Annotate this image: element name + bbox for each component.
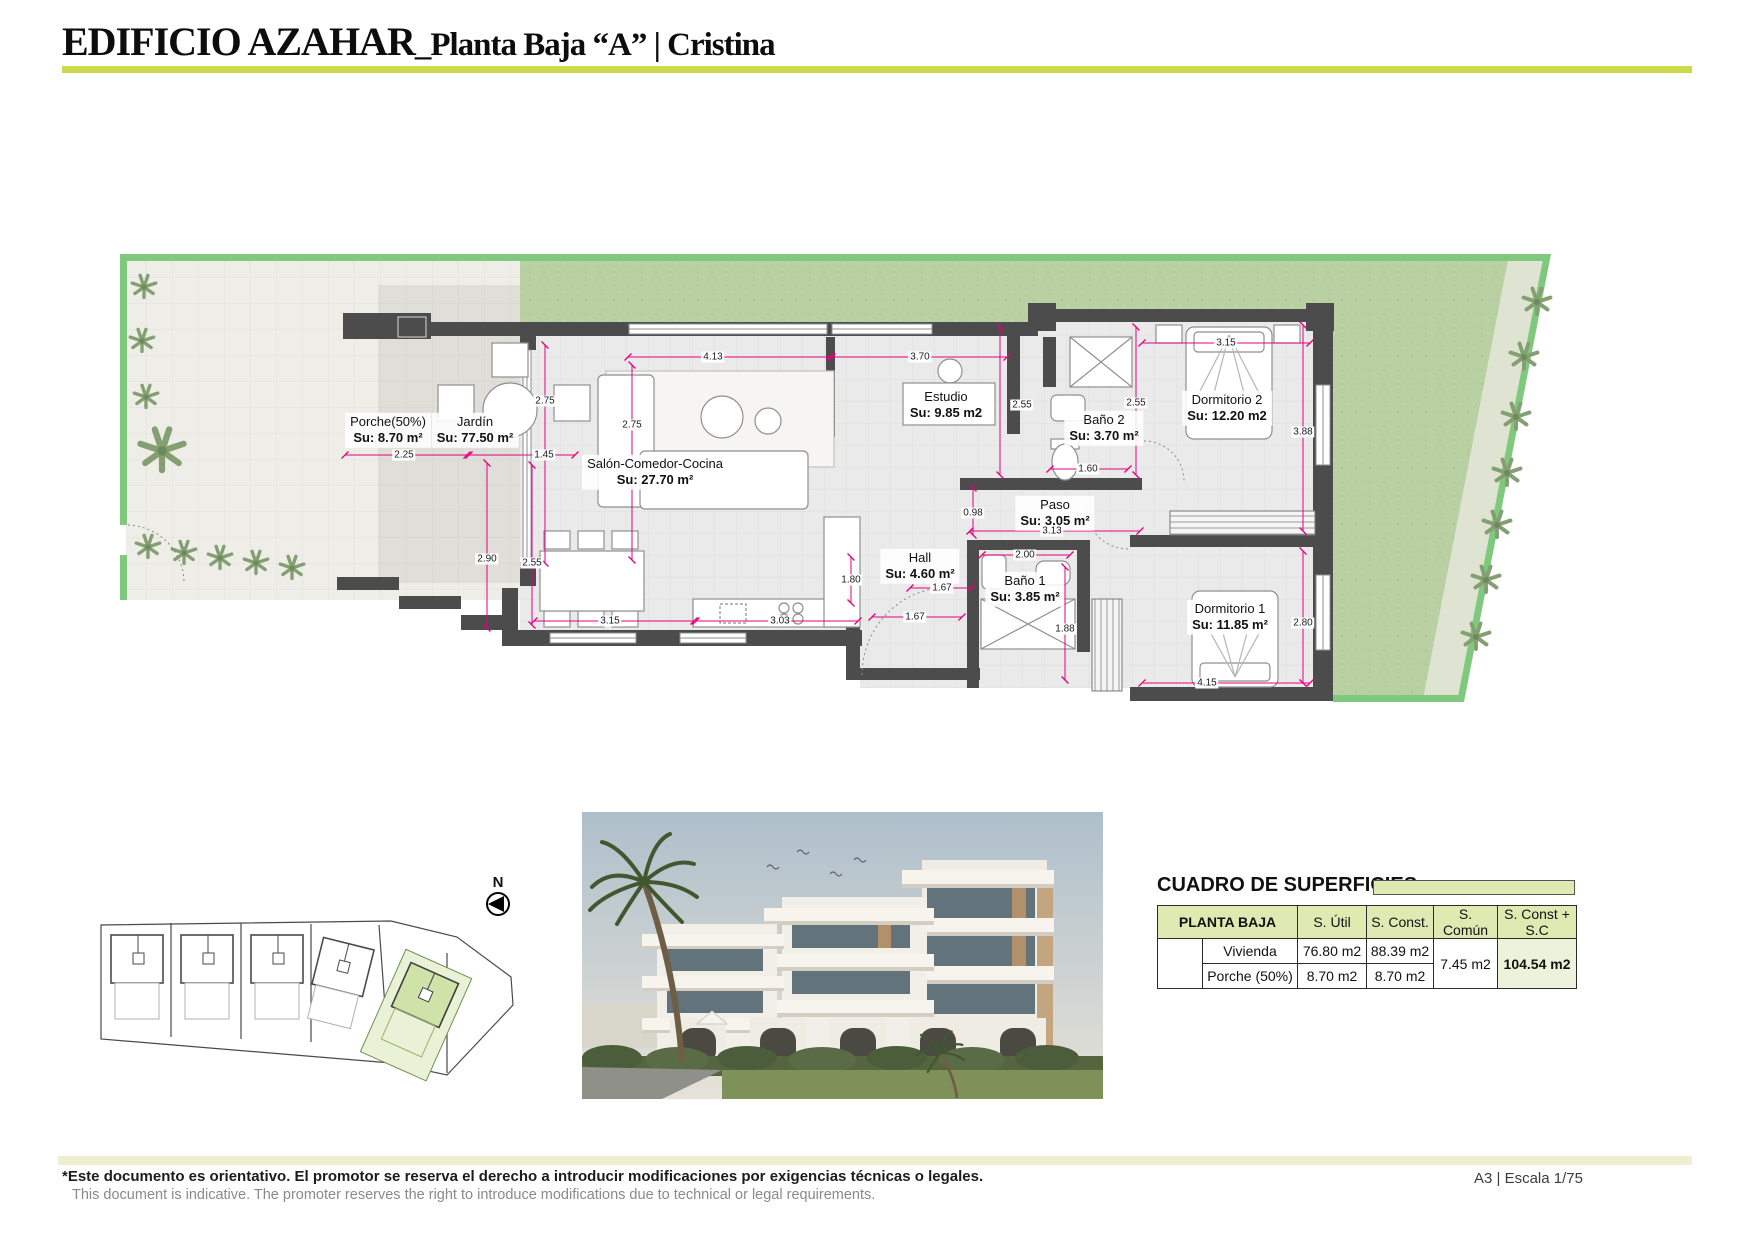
dimension-label: 3.15 [1214,338,1237,349]
dimension-label: 1.67 [903,612,926,623]
room-area: Su: 8.70 m² [350,430,426,446]
room-area: Su: 4.60 m² [885,566,954,582]
building-render-drawing [582,812,1103,1099]
room-name: Estudio [924,389,967,404]
surfaces-table: PLANTA BAJA S. Útil S. Const. S. Común S… [1157,905,1577,989]
site-unit [181,935,233,1019]
room-name: Dormitorio 2 [1192,392,1263,407]
col-header-s-comun: S. Común [1434,906,1498,939]
dimension-label: 2.90 [475,554,498,565]
cell-total: 104.54 m2 [1498,939,1577,989]
dimension-label: 3.13 [1040,526,1063,537]
room-area: Su: 27.70 m² [587,472,723,488]
room-area: Su: 9.85 m2 [910,405,982,421]
room-name: Dormitorio 1 [1195,601,1266,616]
dimension-label: 2.75 [620,420,643,431]
dining-table [540,531,644,627]
site-unit [111,935,163,1019]
dimension-label: 3.70 [908,352,931,363]
wardrobe-paso [1092,599,1122,691]
cell-porche-label: Porche (50%) [1203,964,1298,989]
cell-vivienda-util: 76.80 m2 [1298,939,1367,964]
room-label-porche: Porche(50%) Su: 8.70 m² [345,413,431,448]
room-label-bano2: Baño 2 Su: 3.70 m² [1064,411,1143,446]
room-name: Salón-Comedor-Cocina [587,456,723,471]
room-name: Jardín [457,414,493,429]
dimension-label: 4.15 [1195,678,1218,689]
cell-comun: 7.45 m2 [1434,939,1498,989]
room-label-dormitorio1: Dormitorio 1 Su: 11.85 m² [1187,600,1273,635]
room-area: Su: 77.50 m² [437,430,514,446]
room-name: Baño 1 [1004,573,1045,588]
floor-plan-drawing [120,225,1555,703]
col-header-s-util: S. Útil [1298,906,1367,939]
disclaimer-english: This document is indicative. The promote… [72,1187,875,1203]
site-plan-drawing [95,915,515,1085]
room-label-salon: Salón-Comedor-Cocina Su: 27.70 m² [582,455,728,490]
floor-plan: Jardín Su: 77.50 m² Porche(50%) Su: 8.70… [120,225,1555,703]
dimension-label: 2.55 [1010,400,1033,411]
dimension-label: 3.15 [598,616,621,627]
dimension-label: 3.88 [1291,427,1314,438]
dimension-label: 2.25 [392,450,415,461]
room-name: Paso [1040,497,1070,512]
dimension-label: 4.13 [701,352,724,363]
site-plan [95,915,515,1085]
building-render-photo [582,812,1103,1099]
col-header-s-const: S. Const. [1367,906,1434,939]
dimension-label: 2.80 [1291,618,1314,629]
room-label-jardin: Jardín Su: 77.50 m² [432,413,519,448]
cell-vivienda-const: 88.39 m2 [1367,939,1434,964]
table-row: Vivienda 76.80 m2 88.39 m2 7.45 m2 104.5… [1158,939,1577,964]
dimension-label: 3.03 [768,616,791,627]
sheet-scale-info: A3 | Escala 1/75 [1474,1170,1583,1187]
dimension-label: 2.55 [520,558,543,569]
room-label-dormitorio2: Dormitorio 2 Su: 12.20 m2 [1182,391,1272,426]
col-header-s-const-sc: S. Const + S.C [1498,906,1577,939]
page-title-floor: _Planta Baja “A” | Cristina [415,27,775,63]
page-title-project: EDIFICIO AZAHAR [62,19,415,64]
room-name: Hall [909,550,931,565]
dimension-label: 1.80 [839,575,862,586]
header-accent-rule [62,66,1692,73]
dimension-label: 2.00 [1013,550,1036,561]
dimension-label: 1.88 [1053,624,1076,635]
floorplan-sheet: { "header": { "title_part1": "EDIFICIO A… [0,0,1754,1240]
cell-porche-const: 8.70 m2 [1367,964,1434,989]
room-area: Su: 11.85 m² [1192,617,1268,633]
dimension-label: 1.60 [1076,464,1099,475]
site-unit [251,935,303,1019]
room-area: Su: 3.85 m² [990,589,1059,605]
footer-accent-bar [58,1156,1692,1165]
dimension-label: 0.98 [961,508,984,519]
dimension-label: 2.55 [1124,398,1147,409]
row-group-cell [1158,939,1203,989]
dimension-label: 1.45 [532,450,555,461]
room-label-bano1: Baño 1 Su: 3.85 m² [985,572,1064,607]
dimension-label: 2.75 [533,396,556,407]
cell-porche-util: 8.70 m2 [1298,964,1367,989]
room-area: Su: 3.70 m² [1069,428,1138,444]
disclaimer-spanish: *Este documento es orientativo. El promo… [62,1168,983,1185]
cell-vivienda-label: Vivienda [1203,939,1298,964]
room-label-hall: Hall Su: 4.60 m² [880,549,959,584]
room-name: Porche(50%) [350,414,426,429]
room-area: Su: 12.20 m2 [1187,408,1267,424]
lawn [722,1070,1103,1099]
room-name: Baño 2 [1083,412,1124,427]
north-arrow-icon [485,891,511,917]
page-title: EDIFICIO AZAHAR_Planta Baja “A” | Cristi… [62,18,775,65]
surfaces-panel: CUADRO DE SUPERFICIES PLANTA BAJA S. Úti… [1157,874,1577,989]
surfaces-title-bar [1373,880,1575,895]
dimension-label: 1.67 [930,583,953,594]
table-header-row: PLANTA BAJA S. Útil S. Const. S. Común S… [1158,906,1577,939]
closet-dormitorio1 [1170,511,1315,535]
col-header-planta-baja: PLANTA BAJA [1158,906,1298,939]
room-label-estudio: Estudio Su: 9.85 m2 [905,388,987,423]
north-label: N [478,874,518,891]
